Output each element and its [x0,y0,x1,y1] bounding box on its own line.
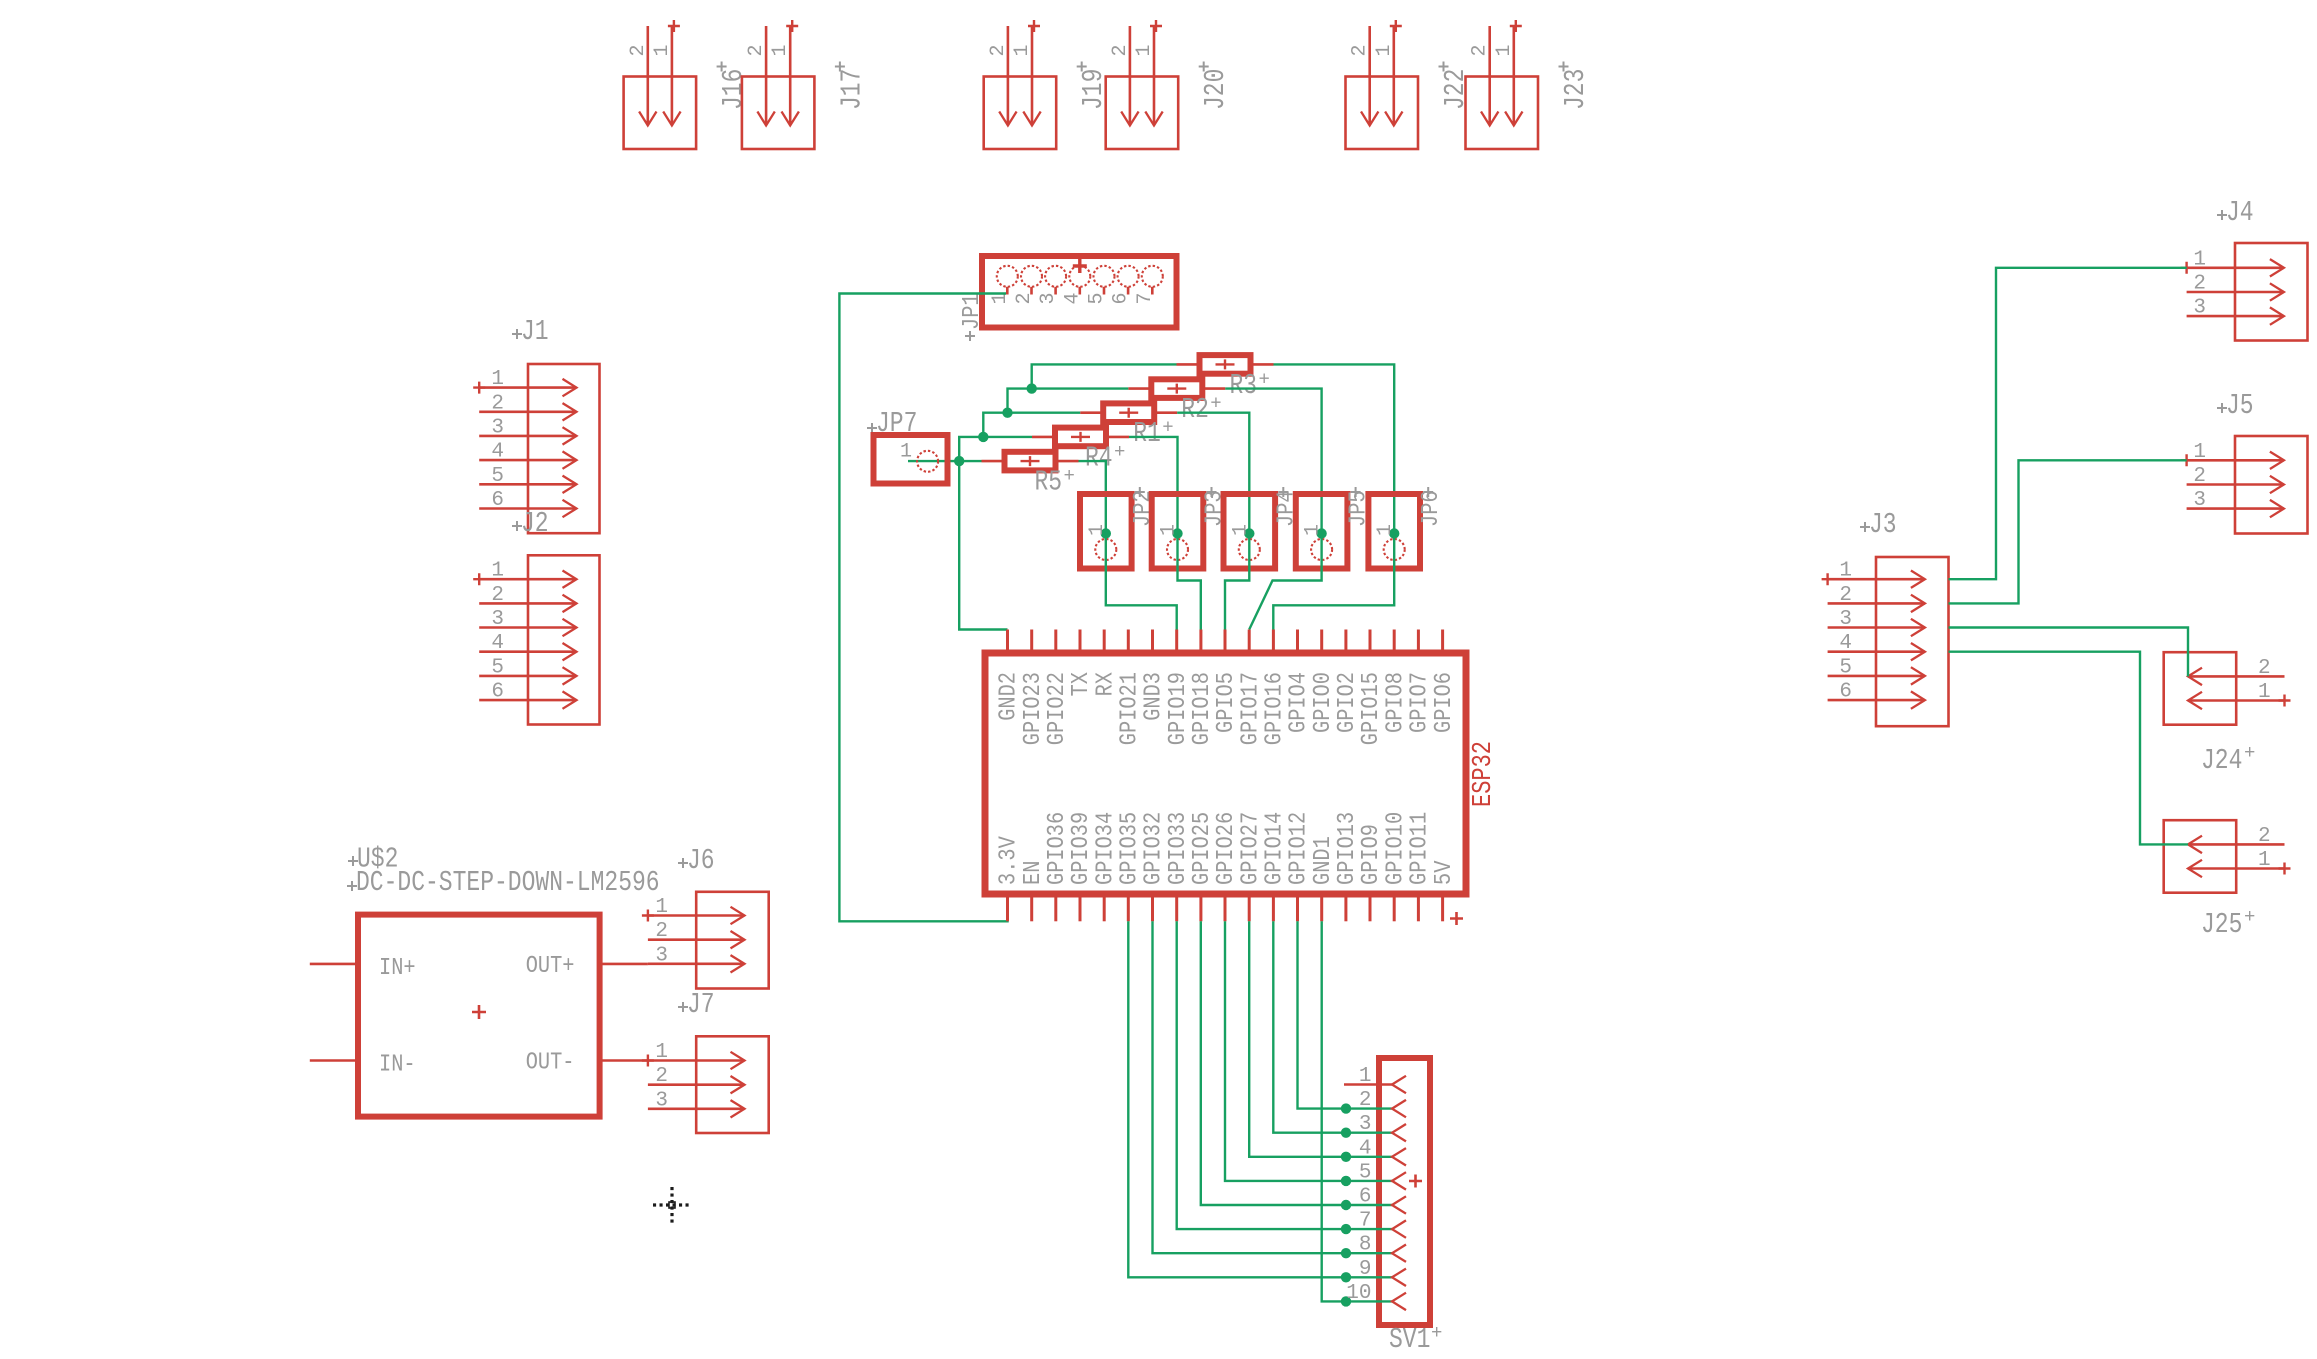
svg-text:RX: RX [1092,672,1119,696]
svg-text:J5: J5 [2226,389,2254,422]
svg-text:6: 6 [1359,1186,1372,1209]
svg-text:+: + [1114,441,1125,463]
svg-text:GND1: GND1 [1310,836,1337,885]
svg-text:6: 6 [491,681,504,704]
svg-text:1: 1 [655,1041,668,1064]
svg-text:1: 1 [769,44,792,56]
svg-text:OUT-: OUT- [526,1050,575,1077]
svg-text:JP1: JP1 [959,293,986,330]
svg-text:GPIO8: GPIO8 [1382,672,1409,733]
svg-text:GPIO17: GPIO17 [1237,672,1264,745]
svg-text:3: 3 [491,608,504,631]
svg-text:J3: J3 [1869,508,1897,541]
svg-text:EN: EN [1020,861,1047,885]
svg-text:3: 3 [1839,608,1852,631]
svg-text:J17: J17 [835,69,868,110]
svg-text:J23: J23 [1559,69,1592,110]
svg-text:+: + [1259,368,1270,390]
svg-text:7: 7 [1134,292,1157,304]
svg-text:1: 1 [1359,1065,1372,1088]
svg-text:J16: J16 [717,69,750,110]
svg-text:J4: J4 [2226,196,2254,229]
svg-text:GPIO32: GPIO32 [1141,812,1168,885]
svg-text:GPIO19: GPIO19 [1165,672,1192,745]
svg-text:8: 8 [1359,1234,1372,1257]
svg-text:2: 2 [491,584,504,607]
svg-text:J1: J1 [521,315,549,348]
svg-text:R3: R3 [1230,369,1258,402]
svg-text:GPIO25: GPIO25 [1189,812,1216,885]
svg-text:3: 3 [1359,1113,1372,1136]
svg-text:2: 2 [655,920,668,943]
svg-text:3: 3 [2193,489,2206,512]
svg-text:4: 4 [1359,1137,1372,1160]
svg-text:5: 5 [1839,656,1852,679]
svg-text:2: 2 [627,44,650,56]
svg-text:1: 1 [491,368,504,391]
svg-text:3.3V: 3.3V [996,836,1023,885]
svg-text:1: 1 [900,441,912,464]
svg-text:J22: J22 [1439,69,1472,110]
svg-text:3: 3 [1037,292,1060,304]
svg-text:R5: R5 [1035,466,1063,499]
svg-text:3: 3 [655,1089,668,1112]
svg-text:GND2: GND2 [996,672,1023,721]
svg-text:2: 2 [491,392,504,415]
svg-text:GPIO6: GPIO6 [1431,672,1458,733]
svg-text:1: 1 [655,896,668,919]
svg-text:+: + [2244,742,2255,764]
svg-text:GPIO14: GPIO14 [1262,812,1289,885]
svg-text:GPIO35: GPIO35 [1117,812,1144,885]
svg-text:4: 4 [1061,292,1084,304]
svg-text:J7: J7 [687,988,715,1021]
svg-text:GPIO13: GPIO13 [1334,812,1361,885]
svg-text:5V: 5V [1431,860,1458,885]
svg-text:2: 2 [655,1065,668,1088]
svg-text:10: 10 [1346,1282,1371,1305]
svg-text:2: 2 [1359,1089,1372,1112]
svg-text:1: 1 [1493,44,1516,56]
svg-text:GPIO7: GPIO7 [1407,672,1434,733]
svg-text:1: 1 [1011,44,1034,56]
svg-text:3: 3 [655,944,668,967]
svg-text:1: 1 [2258,849,2271,872]
svg-text:GPIO22: GPIO22 [1044,672,1071,745]
svg-text:SV1: SV1 [1389,1323,1430,1356]
svg-text:GPIO21: GPIO21 [1117,672,1144,745]
svg-text:GPIO16: GPIO16 [1262,672,1289,745]
svg-text:GPIO9: GPIO9 [1358,824,1385,885]
svg-text:2: 2 [1839,584,1852,607]
svg-text:GPIO11: GPIO11 [1407,812,1434,885]
svg-text:J2: J2 [521,507,549,540]
svg-text:1: 1 [1839,560,1852,583]
svg-text:5: 5 [491,465,504,488]
svg-text:+: + [1431,1322,1442,1344]
svg-text:2: 2 [1349,44,1372,56]
svg-text:5: 5 [1086,292,1109,304]
svg-text:GPIO23: GPIO23 [1020,672,1047,745]
svg-text:GPIO2: GPIO2 [1334,672,1361,733]
svg-text:4: 4 [491,441,504,464]
svg-text:2: 2 [2258,825,2271,848]
svg-text:GPIO36: GPIO36 [1044,812,1071,885]
svg-text:TX: TX [1068,672,1095,696]
svg-text:5: 5 [1359,1161,1372,1184]
svg-text:R1: R1 [1133,417,1161,450]
svg-text:6: 6 [1110,292,1133,304]
svg-text:2: 2 [1109,44,1132,56]
svg-text:2: 2 [745,44,768,56]
svg-text:GND3: GND3 [1141,672,1168,721]
svg-text:2: 2 [987,44,1010,56]
svg-text:1: 1 [1133,44,1156,56]
svg-text:GPIO26: GPIO26 [1213,812,1240,885]
svg-text:4: 4 [1839,632,1852,655]
svg-text:GPIO4: GPIO4 [1286,672,1313,733]
svg-text:+: + [1210,393,1221,415]
svg-text:2: 2 [2193,273,2206,296]
svg-text:J20: J20 [1199,69,1232,110]
svg-text:GPIO34: GPIO34 [1092,812,1119,885]
svg-text:GPIO15: GPIO15 [1358,672,1385,745]
svg-text:2: 2 [1469,44,1492,56]
svg-text:GPIO39: GPIO39 [1068,812,1095,885]
svg-text:1: 1 [491,560,504,583]
svg-text:+: + [1162,417,1173,439]
svg-text:9: 9 [1359,1258,1372,1281]
svg-text:GPIO12: GPIO12 [1286,812,1313,885]
svg-text:6: 6 [1839,681,1852,704]
svg-text:1: 1 [2258,681,2271,704]
svg-text:GPIO10: GPIO10 [1382,812,1409,885]
svg-text:GPIO33: GPIO33 [1165,812,1192,885]
svg-text:IN-: IN- [379,1052,416,1079]
svg-text:R2: R2 [1181,393,1209,426]
svg-text:3: 3 [491,416,504,439]
svg-text:3: 3 [2193,297,2206,320]
svg-text:2: 2 [2193,465,2206,488]
svg-text:5: 5 [491,656,504,679]
svg-text:DC-DC-STEP-DOWN-LM2596: DC-DC-STEP-DOWN-LM2596 [356,866,660,899]
svg-text:2: 2 [2258,657,2271,680]
svg-text:JP6: JP6 [1418,490,1445,527]
svg-text:ESP32: ESP32 [1469,741,1499,807]
svg-text:OUT+: OUT+ [526,953,575,980]
svg-text:2: 2 [1013,292,1036,304]
svg-text:J24: J24 [2201,744,2242,777]
svg-text:4: 4 [491,632,504,655]
svg-text:GPIO27: GPIO27 [1237,812,1264,885]
svg-text:IN+: IN+ [379,955,416,982]
svg-text:+: + [2244,906,2255,928]
svg-text:GPIO0: GPIO0 [1310,672,1337,733]
svg-text:GPIO18: GPIO18 [1189,672,1216,745]
svg-text:1: 1 [2193,248,2206,271]
svg-text:1: 1 [2193,441,2206,464]
svg-text:J25: J25 [2201,908,2242,941]
svg-text:1: 1 [1373,44,1396,56]
svg-text:GPIO5: GPIO5 [1213,672,1240,733]
svg-text:1: 1 [651,44,674,56]
svg-text:J6: J6 [687,844,715,877]
svg-text:+: + [1064,465,1075,487]
svg-text:7: 7 [1359,1210,1372,1233]
svg-text:R4: R4 [1085,441,1113,474]
svg-text:6: 6 [491,489,504,512]
